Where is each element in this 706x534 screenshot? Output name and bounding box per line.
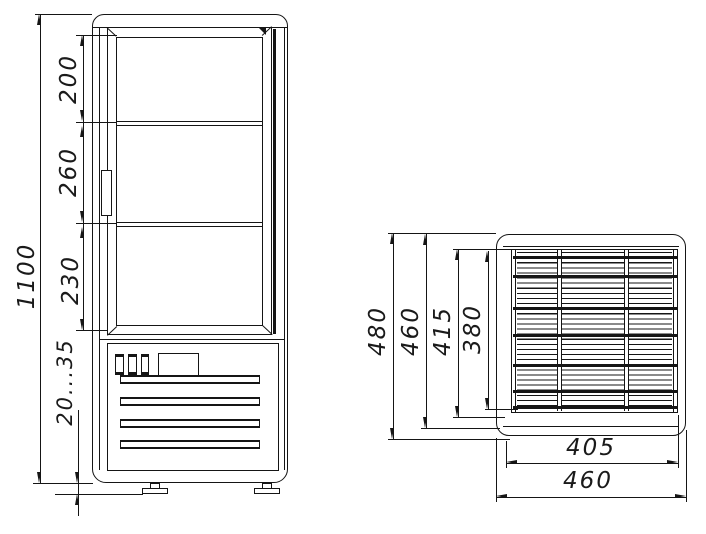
ext-body-left-drop [496,438,497,502]
ext-body-bottom [421,428,500,429]
dim-line-grille-depth [458,249,459,417]
grille-bar [513,256,677,259]
dim-line-grille-inner-depth [488,251,489,409]
ext-overall-bottom [388,439,510,440]
glass-shelf-lower [117,222,262,227]
ext-grille-right-drop [678,415,679,468]
arrow-down-icon [37,472,41,483]
dim-label-total-height: 1100 [14,243,40,310]
arrow-down-icon [390,428,394,439]
grille-bar [513,334,677,337]
grille-bar [513,364,677,367]
arrow-right-icon [675,494,686,498]
ext-body-top [388,233,496,234]
switch-3 [141,354,149,375]
grille-bar [513,275,677,278]
dim-label-overall-depth: 480 [365,306,391,356]
ext-grille-bottom [453,417,505,418]
grille-bar [513,406,677,409]
arrow-up-icon [75,494,79,505]
switch-1 [115,354,124,375]
arrow-up-icon [37,14,41,25]
vent-slat-1 [120,375,260,384]
arrow-up-icon [80,35,84,46]
vent-slat-4 [120,440,260,449]
technical-drawing-canvas: 1100 200 260 230 20...35 [0,0,706,534]
arrow-up-icon [80,126,84,137]
arrow-up-icon [485,251,489,262]
dim-line-grille-width [506,463,678,464]
dim-label-bottom-section: 230 [58,255,84,305]
dim-label-overall-width: 460 [563,468,613,494]
glass-door-inner-frame [116,37,263,326]
cabinet-left-wall-line [99,27,100,470]
door-handle [101,170,112,216]
left-foot-pad [142,488,168,494]
arrow-left-icon [496,494,507,498]
vent-slat-3 [120,419,260,428]
arrow-left-icon [506,460,517,464]
ext-top [35,14,92,15]
arrow-up-icon [390,233,394,244]
dim-label-top-section: 200 [56,54,82,104]
arrow-down-icon [455,406,459,417]
door-corner-gasket [259,28,266,35]
arrow-down-icon [485,398,489,409]
arrow-up-icon [423,234,427,245]
dim-line-total-height [40,14,41,483]
switch-2 [128,354,137,375]
ext-door-bottom [76,330,108,331]
arrow-down-icon [423,417,427,428]
dim-label-grille-depth: 415 [430,306,456,356]
arrow-down-icon [75,472,79,483]
glass-shelf-upper [117,121,262,126]
door-edge-gasket-line [273,29,276,334]
right-foot-pad [254,488,280,494]
dim-line-overall-width [496,497,686,498]
arrow-right-icon [667,460,678,464]
cabinet-right-wall-line [284,27,285,470]
dim-label-foot-range: 20...35 [53,338,77,425]
arrow-up-icon [455,249,459,260]
top-view-front-wall-line [503,246,679,247]
ext-grille-inner-bottom [485,409,518,410]
grille-bar [513,390,677,393]
arrow-down-icon [80,211,84,222]
dim-line-body-depth [426,234,427,428]
controller-display [158,353,199,376]
grille-bar [513,307,677,310]
ext-body-bottom [33,483,93,484]
ext-body-right-drop [686,430,687,502]
dim-label-body-depth: 460 [398,306,424,356]
dim-label-grille-width: 405 [566,435,616,461]
arrow-down-icon [80,319,84,330]
door-bottom-line [99,339,284,340]
dim-line-overall-depth [393,233,394,439]
ext-floor-line [55,494,143,495]
ext-grille-top [453,249,511,250]
dim-label-grille-inner-depth: 380 [460,304,486,354]
top-view-rear-wall-line [503,426,679,427]
arrow-down-icon [80,110,84,121]
vent-slat-2 [120,397,260,406]
arrow-up-icon [80,227,84,238]
dim-label-middle-section: 260 [56,147,82,197]
